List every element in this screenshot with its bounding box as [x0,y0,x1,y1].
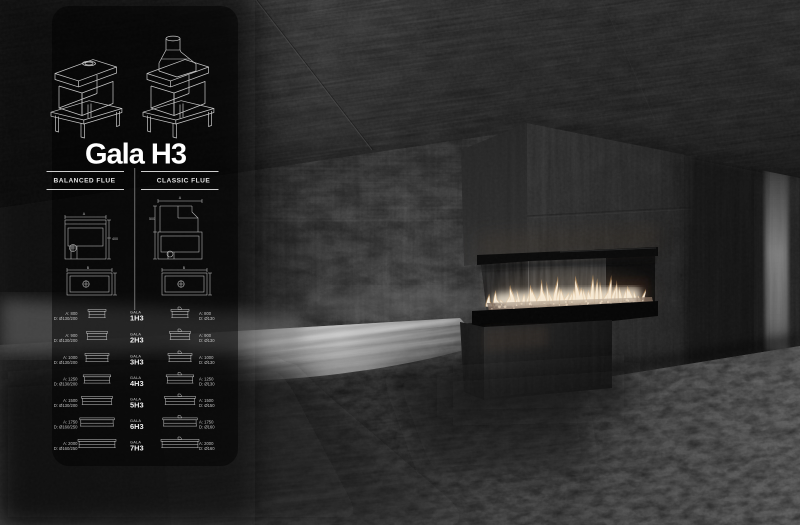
svg-text:7H3: 7H3 [130,444,144,453]
svg-text:6H3: 6H3 [130,422,144,431]
svg-text:D: Ø130/200: D: Ø130/200 [54,382,78,387]
svg-text:D: Ø130/200: D: Ø130/200 [54,338,78,343]
svg-text:D: Ø160: D: Ø160 [199,425,215,430]
svg-text:CLASSIC FLUE: CLASSIC FLUE [157,178,211,185]
svg-text:BALANCED FLUE: BALANCED FLUE [54,178,116,185]
svg-text:2H3: 2H3 [130,336,144,345]
svg-text:D: Ø160/250: D: Ø160/250 [54,446,78,451]
svg-text:500: 500 [149,217,155,221]
svg-text:D: Ø130: D: Ø130 [199,382,215,387]
svg-text:Gala H3: Gala H3 [85,139,187,171]
svg-text:D: Ø130/200: D: Ø130/200 [54,403,78,408]
svg-text:4H3: 4H3 [130,379,144,388]
svg-text:1H3: 1H3 [130,314,144,323]
svg-text:D: Ø160: D: Ø160 [199,446,215,451]
svg-text:3H3: 3H3 [130,358,144,367]
svg-text:D: Ø160/250: D: Ø160/250 [54,425,78,430]
svg-text:D: Ø130: D: Ø130 [199,316,215,321]
svg-text:D: Ø130/200: D: Ø130/200 [54,360,78,365]
svg-text:D: Ø130: D: Ø130 [199,338,215,343]
svg-text:5H3: 5H3 [130,401,144,410]
svg-text:D: Ø150: D: Ø150 [199,403,215,408]
svg-text:D: Ø130: D: Ø130 [199,360,215,365]
svg-text:400: 400 [112,237,118,241]
svg-text:D: Ø130/200: D: Ø130/200 [54,316,78,321]
